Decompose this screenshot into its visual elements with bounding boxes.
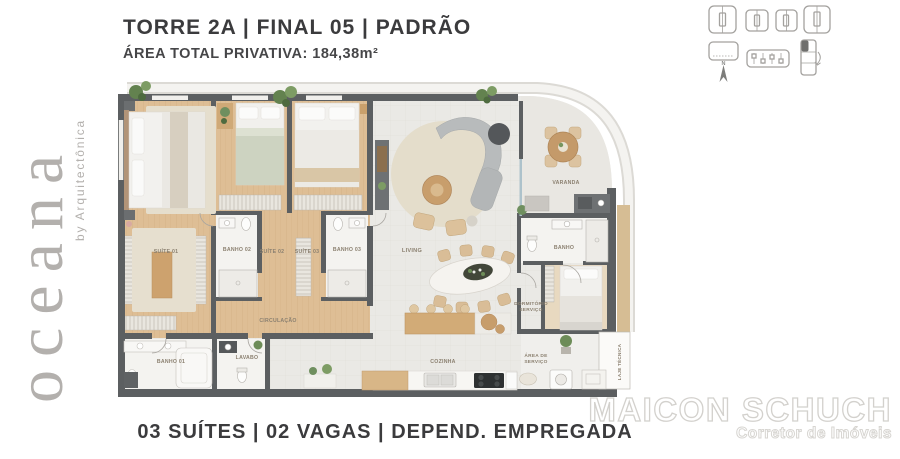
room-label-banho-servico: BANHO [554,245,574,251]
room-label-banho03: BANHO 03 [333,247,361,253]
room-label-area-servico-l2: SERVIÇO [524,359,547,365]
features-line: 03 SUÍTES | 02 VAGAS | DEPEND. EMPREGADA [110,421,660,444]
room-label-living: LIVING [402,248,422,254]
dormitorio-servico-furniture [560,266,602,330]
room-label-suite02: SUÍTE 02 [260,247,285,255]
keyplan-small-icon [746,10,768,31]
room-label-dormitorio-l2: SERVIÇO [519,307,542,313]
room-label-suite03: SUÍTE 03 [295,247,320,255]
unit-position-icon [801,40,821,75]
room-label-lavabo: LAVABO [236,355,259,361]
room-label-cozinha: COZINHA [430,359,455,365]
north-compass-icon: N [709,42,738,82]
levels-icon [747,50,789,67]
suite03-furniture [295,103,367,187]
room-label-banho02: BANHO 02 [223,247,251,253]
keyplan-small-icon-2 [776,10,797,31]
brand-logo-text: oceana [11,73,71,403]
floor-plan: SUÍTE 01 BANHO 02 SUÍTE 02 SUÍTE 03 BANH… [115,75,640,400]
keyplan-wide-icon-2 [804,6,830,33]
room-label-circulacao: CIRCULAÇÃO [259,317,296,324]
room-label-varanda: VARANDA [552,180,579,186]
room-label-area-servico-l1: ÁREA DE [524,352,548,359]
armchair [445,219,467,237]
kitchen-island [405,313,475,334]
page-title: TORRE 2A | FINAL 05 | PADRÃO [123,16,471,40]
cooktop [474,373,504,388]
keyplan-icons: N [695,2,860,90]
room-label-suite01: SUÍTE 01 [154,247,179,255]
dark-ottoman [488,123,510,145]
watermark-name: MAICON SCHUCH [588,394,892,425]
room-label-laje-tecnica: LAJE TÉCNICA [615,343,622,380]
brand-byline: by Arquitectônica [73,73,87,241]
brand-logo: oceana by Arquitectônica [11,73,95,403]
room-label-banho01: BANHO 01 [157,359,185,365]
page-subtitle: ÁREA TOTAL PRIVATIVA: 184,38m² [123,46,378,62]
watermark: MAICON SCHUCH Corretor de Imóveis [588,394,892,442]
dressing-bench [152,252,172,298]
flyer-page: oceana by Arquitectônica TORRE 2A | FINA… [0,0,900,459]
bed-headboard [124,110,129,210]
planter-strip [617,205,630,332]
keyplan-wide-icon [709,6,736,33]
